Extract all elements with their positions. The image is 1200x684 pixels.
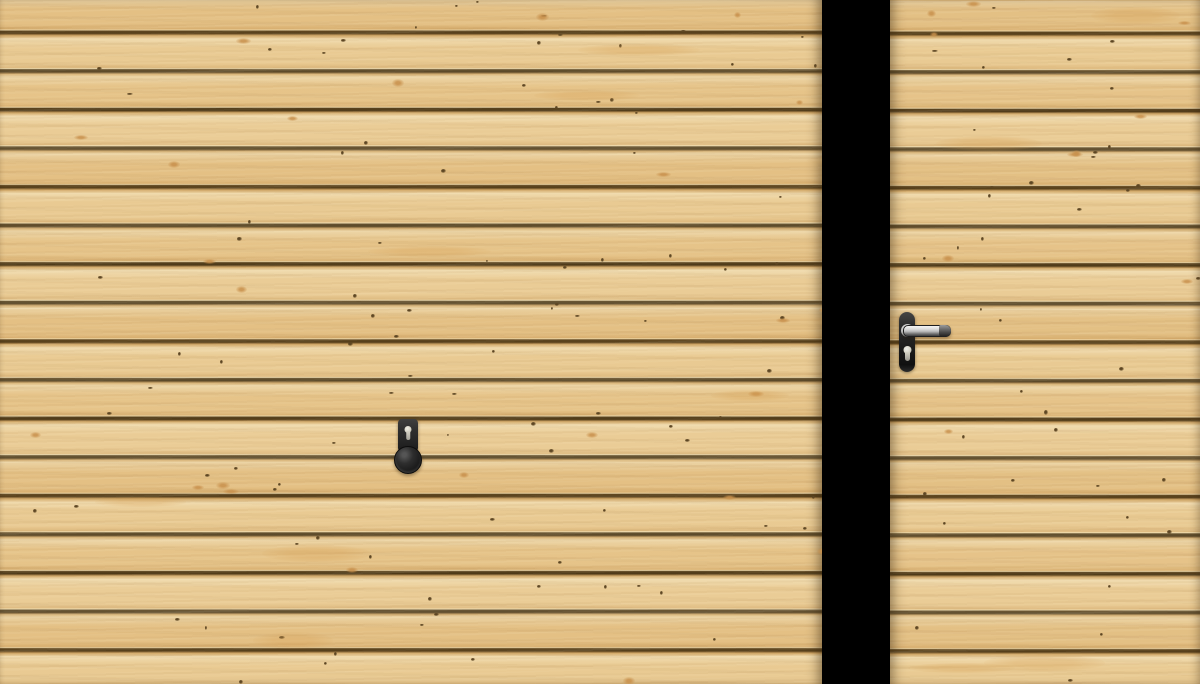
- wood-knot: [578, 44, 700, 56]
- wood-knot: [407, 309, 412, 312]
- wood-knot: [644, 320, 648, 323]
- wood-knot: [1167, 530, 1172, 534]
- wood-knot: [220, 360, 223, 364]
- wood-knot: [764, 525, 768, 527]
- wood-knot: [936, 136, 1042, 151]
- wood-knot: [1054, 428, 1058, 432]
- wood-knot: [1108, 145, 1111, 149]
- wood-knot: [943, 522, 946, 526]
- wood-knot: [990, 186, 994, 188]
- wood-knot: [1178, 21, 1191, 26]
- wood-knot: [428, 597, 432, 601]
- wood-knot: [796, 100, 803, 105]
- wood-knot: [633, 152, 636, 154]
- wood-knot: [369, 555, 372, 559]
- wood-knot: [711, 390, 789, 400]
- wood-knot: [669, 425, 673, 429]
- wood-knot: [1020, 390, 1023, 393]
- wood-knot: [74, 135, 88, 140]
- wood-knot: [452, 393, 457, 395]
- wood-knot: [1096, 485, 1100, 487]
- wood-knot: [908, 663, 1015, 673]
- wood-knot: [107, 412, 112, 414]
- wood-knot: [415, 26, 418, 29]
- wood-knot: [97, 67, 102, 71]
- wood-knot: [216, 482, 230, 490]
- wood-knot: [278, 483, 281, 486]
- wood-knot: [1091, 7, 1180, 24]
- wood-knot: [348, 342, 354, 346]
- wood-knot: [394, 335, 399, 338]
- wood-knot: [957, 246, 960, 250]
- wood-knot: [619, 44, 622, 48]
- wood-knot: [623, 677, 636, 684]
- wood-knot: [98, 276, 103, 278]
- wood-knot: [1067, 152, 1083, 157]
- wood-knot: [731, 63, 734, 66]
- wood-knot: [256, 5, 259, 9]
- wood-knot: [192, 485, 204, 490]
- wood-knot: [780, 316, 785, 320]
- wood-knot: [322, 52, 326, 54]
- wood-knot: [801, 36, 804, 38]
- door-knob[interactable]: [394, 446, 422, 474]
- wood-knot: [316, 536, 320, 540]
- wood-knot: [1091, 156, 1096, 159]
- wood-knot: [549, 449, 554, 452]
- wood-knot: [346, 567, 358, 573]
- wood-knot: [719, 416, 722, 418]
- wood-knot: [660, 591, 663, 595]
- wood-knot: [148, 387, 153, 389]
- wood-knot: [1162, 478, 1166, 482]
- wood-knot: [408, 375, 413, 377]
- wood-knot: [236, 286, 247, 293]
- wood-knot: [1119, 367, 1124, 371]
- wood-knots-layer: [0, 0, 822, 684]
- wood-knot: [534, 90, 640, 101]
- entry-door-panel: [890, 0, 1200, 684]
- wood-knot: [992, 7, 997, 9]
- wood-knot: [168, 161, 180, 168]
- wood-knot: [930, 32, 938, 37]
- wood-knot: [1126, 516, 1130, 519]
- wood-knot: [942, 255, 955, 262]
- wood-knot: [596, 412, 601, 415]
- wood-knot: [268, 48, 272, 51]
- wood-knot: [776, 318, 790, 323]
- wood-knot: [724, 268, 727, 271]
- wood-knot: [984, 655, 1105, 670]
- wood-knot: [33, 509, 37, 513]
- wood-knot: [610, 98, 614, 102]
- wood-knot: [713, 638, 716, 641]
- wood-knot: [1093, 151, 1098, 155]
- wood-knot: [341, 39, 346, 42]
- doors-scene: [0, 0, 1200, 684]
- wood-knot: [248, 220, 251, 224]
- garage-door-panel: [0, 0, 822, 684]
- wood-knot: [74, 505, 79, 509]
- wood-knot: [392, 79, 404, 87]
- wood-knot: [775, 262, 779, 265]
- wood-knot: [234, 467, 238, 470]
- wood-knot: [459, 472, 470, 478]
- wood-knot: [389, 392, 394, 394]
- wood-knot: [637, 585, 641, 588]
- entry-door-handle[interactable]: [899, 312, 951, 374]
- wood-knot: [486, 260, 489, 263]
- wood-knot: [537, 585, 541, 588]
- wood-knot: [814, 64, 817, 68]
- wood-knot: [551, 307, 554, 311]
- wood-knot: [364, 141, 368, 145]
- wood-knot: [944, 429, 954, 434]
- wood-knot: [586, 432, 598, 439]
- wood-knot: [563, 266, 566, 269]
- wood-knot: [492, 350, 496, 353]
- wood-knot: [1068, 679, 1073, 682]
- wood-knot: [669, 254, 673, 258]
- wood-knot: [923, 492, 928, 496]
- wood-knot: [371, 314, 375, 318]
- wood-knot: [1110, 87, 1115, 90]
- wood-knot: [923, 257, 926, 260]
- wood-knot: [262, 545, 371, 562]
- wood-knot: [205, 626, 208, 630]
- wood-knot: [236, 38, 251, 44]
- wood-knot: [127, 93, 132, 95]
- wood-knot: [353, 294, 357, 298]
- wood-knot: [1136, 184, 1141, 188]
- wood-knot: [295, 543, 300, 546]
- door-gap: [822, 0, 890, 684]
- wood-knot: [237, 237, 242, 240]
- wood-knot: [178, 352, 181, 356]
- wood-knot: [1011, 479, 1015, 482]
- wood-knot: [685, 439, 690, 442]
- wood-knot: [803, 527, 807, 530]
- wood-knot: [1110, 40, 1115, 43]
- wood-knot: [378, 242, 382, 244]
- wood-knot: [536, 13, 550, 21]
- handle-backplate: [899, 312, 915, 372]
- wood-knot: [279, 636, 285, 639]
- wood-knot: [555, 303, 560, 306]
- wood-knot: [95, 497, 186, 506]
- wood-knot: [601, 258, 604, 262]
- wood-knot: [30, 432, 42, 438]
- wood-knot: [988, 194, 991, 198]
- wood-knot: [980, 308, 983, 311]
- wood-knot: [982, 66, 986, 69]
- wood-knot: [334, 652, 338, 656]
- wood-knot: [175, 618, 180, 621]
- wood-knot: [973, 129, 977, 132]
- wood-knot: [1181, 279, 1193, 284]
- wood-knot: [1134, 114, 1147, 119]
- wood-knot: [434, 613, 439, 617]
- wood-knot: [223, 489, 239, 494]
- lever-handle[interactable]: [903, 325, 951, 337]
- wood-knot: [558, 34, 563, 36]
- wood-knot: [1044, 410, 1048, 415]
- wood-knot: [1072, 150, 1081, 157]
- wood-knot: [490, 518, 495, 521]
- wood-knot: [441, 169, 446, 173]
- wood-knot: [324, 662, 327, 665]
- wood-knot: [962, 435, 965, 439]
- wood-knot: [1100, 633, 1104, 636]
- wood-knot: [239, 680, 243, 684]
- wood-knot: [1126, 189, 1130, 192]
- wood-knot: [981, 237, 984, 241]
- wood-knot: [558, 561, 562, 564]
- wood-knot: [915, 626, 919, 630]
- wood-knot: [779, 196, 782, 199]
- wood-knot: [932, 50, 937, 53]
- wood-knot: [635, 112, 639, 114]
- wood-knot: [203, 259, 216, 264]
- wood-knot: [656, 172, 671, 178]
- wood-knot: [537, 41, 541, 45]
- wood-knot: [734, 12, 741, 18]
- wood-knot: [723, 495, 736, 500]
- wood-knot: [748, 391, 764, 397]
- wood-knot: [253, 632, 333, 649]
- wood-knot: [555, 106, 558, 109]
- wood-knot: [287, 116, 299, 122]
- wood-knot: [447, 434, 450, 436]
- wood-knot: [531, 422, 536, 426]
- wood-knot: [471, 658, 475, 661]
- wood-knot: [807, 155, 822, 166]
- garage-door-handle[interactable]: [397, 419, 419, 474]
- wood-knot: [1077, 208, 1082, 211]
- wood-knot: [205, 474, 210, 478]
- wood-knot: [341, 151, 345, 155]
- wood-knot: [604, 585, 607, 589]
- wood-knot: [603, 509, 607, 512]
- wood-knot: [1108, 585, 1111, 588]
- wood-knot: [596, 101, 601, 103]
- wood-knot: [999, 319, 1002, 321]
- wood-knot: [508, 418, 513, 420]
- wood-knot: [966, 1, 981, 6]
- wood-knot: [332, 442, 336, 444]
- euro-cylinder-lock-icon: [903, 346, 912, 362]
- wood-knot: [420, 624, 424, 626]
- wood-knot: [681, 30, 686, 32]
- wood-knot: [1067, 58, 1072, 62]
- wood-knot: [812, 496, 815, 499]
- wood-knot: [455, 5, 458, 8]
- wood-knot: [813, 315, 822, 328]
- wood-knot: [522, 84, 526, 87]
- wood-knot: [368, 246, 490, 257]
- wood-knot: [927, 10, 936, 17]
- wood-knot: [541, 15, 547, 17]
- wood-knot: [273, 488, 277, 492]
- wood-knot: [767, 369, 772, 373]
- wood-knot: [1196, 277, 1200, 281]
- wood-knot: [1029, 181, 1034, 185]
- wood-knot: [476, 1, 479, 4]
- wood-knot: [575, 315, 580, 317]
- keyhole-icon: [404, 426, 412, 443]
